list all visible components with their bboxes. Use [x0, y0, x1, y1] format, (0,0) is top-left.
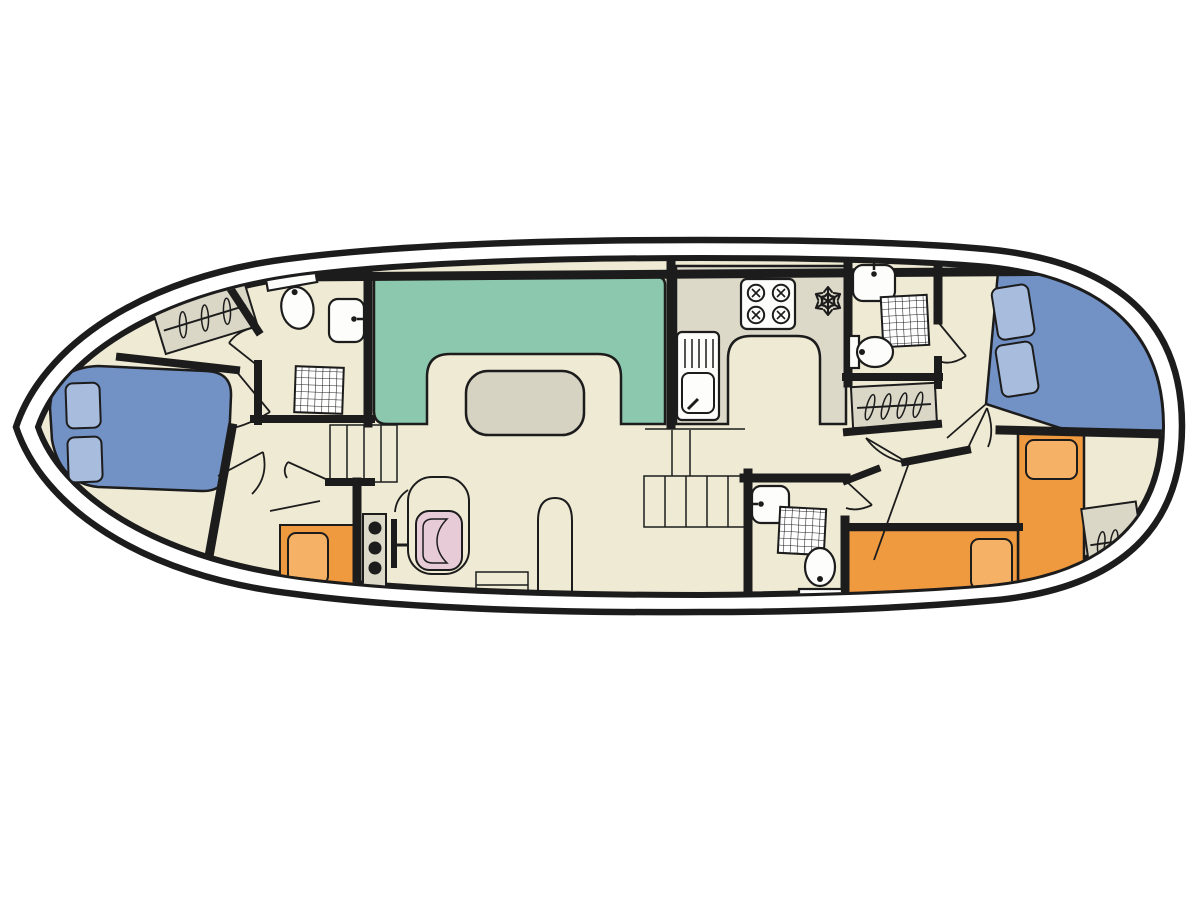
- control-knob: [369, 542, 382, 555]
- pillow: [971, 539, 1012, 589]
- floor-plan-page: [0, 0, 1200, 900]
- throttle-lever: [391, 519, 397, 568]
- pillow: [65, 382, 101, 428]
- control-knob: [369, 522, 382, 535]
- shower-tray: [881, 295, 930, 347]
- wall-segment: [1000, 430, 1166, 434]
- pillow: [991, 284, 1036, 341]
- control-knob: [369, 562, 382, 575]
- dinette-table: [466, 371, 584, 435]
- pillow: [995, 341, 1040, 398]
- pillow: [1026, 440, 1077, 479]
- washbasin: [329, 299, 368, 342]
- wall-segment: [298, 271, 1096, 277]
- toilet: [849, 336, 893, 368]
- boat-floor-plan: [0, 0, 1200, 900]
- shower-tray: [294, 366, 344, 414]
- pillow: [67, 436, 103, 482]
- sink-bowl: [682, 373, 714, 413]
- washbasin: [853, 259, 895, 301]
- galley-sink: [677, 332, 719, 420]
